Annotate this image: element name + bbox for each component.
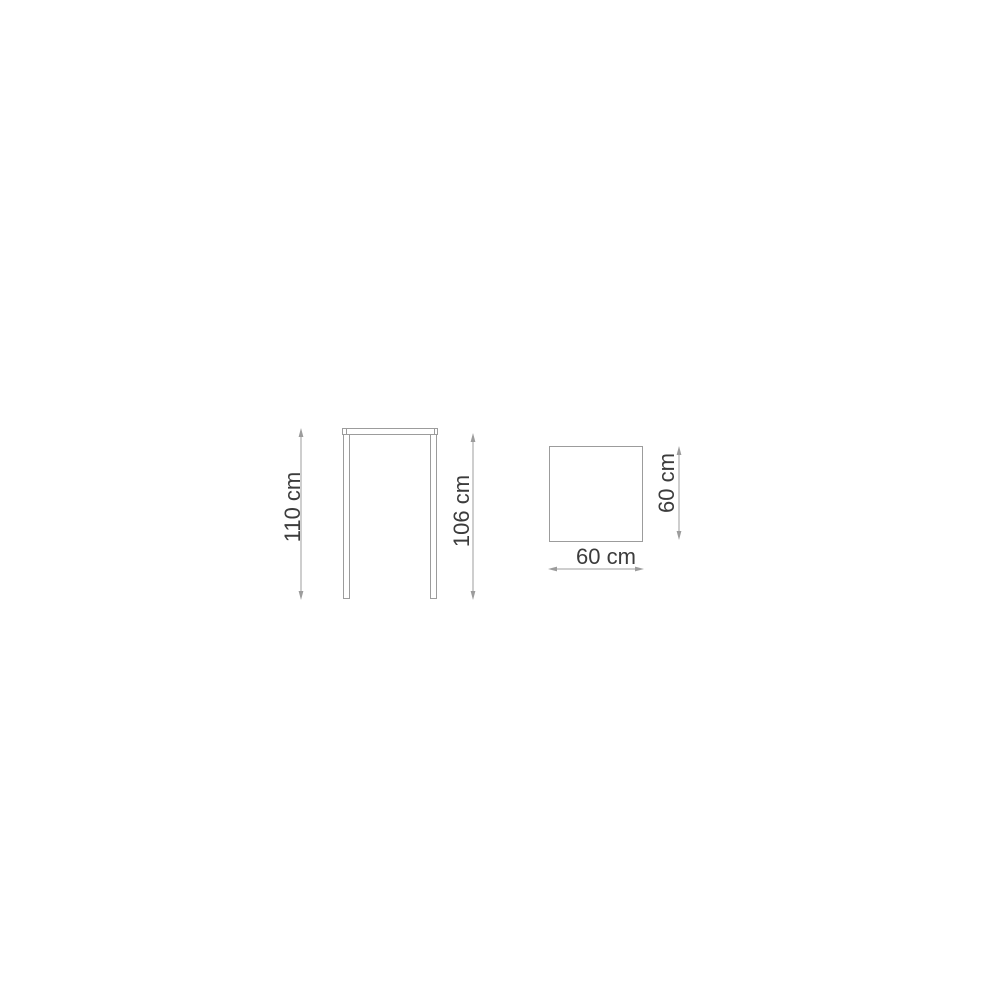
tabletop-front — [342, 428, 438, 435]
arrow-up-icon — [299, 428, 304, 437]
dimension-label-height-under-top: 106 cm — [451, 475, 473, 547]
arrow-right-icon — [635, 567, 644, 572]
arrow-down-icon — [299, 591, 304, 600]
arrow-up-icon — [471, 433, 476, 442]
table-leg-left — [343, 434, 350, 599]
arrow-down-icon — [471, 591, 476, 600]
dimension-label-total-height: 110 cm — [282, 472, 304, 543]
dimension-diagram: 110 cm 106 cm 60 cm 60 cm — [0, 0, 1000, 1000]
tabletop-top-view — [549, 446, 643, 542]
dimension-label-depth: 60 cm — [656, 453, 678, 513]
dimension-label-width: 60 cm — [576, 546, 636, 568]
table-leg-right — [430, 434, 437, 599]
arrow-left-icon — [548, 567, 557, 572]
arrow-down-icon — [677, 531, 682, 540]
